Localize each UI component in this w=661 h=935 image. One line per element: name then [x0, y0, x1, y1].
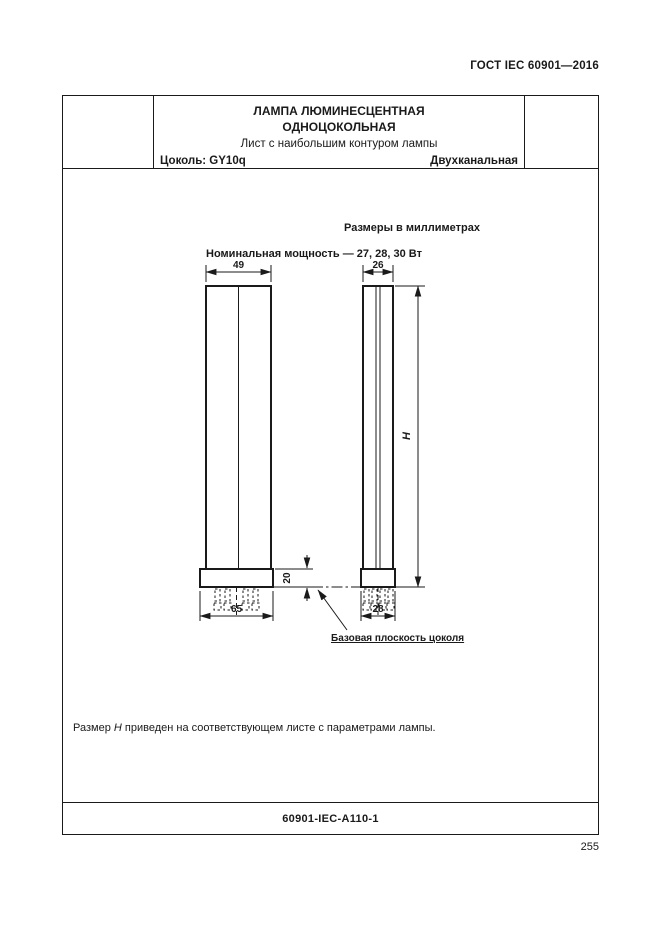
lamp-title-line1: ЛАМПА ЛЮМИНЕСЦЕНТНАЯ [154, 103, 524, 119]
sheet-reference: 60901-IEC-A110-1 [282, 813, 379, 825]
dim-front-base-width: 65 [231, 604, 243, 615]
note-symbol-h: H [114, 722, 122, 734]
pin-tip-hidden-outline [224, 603, 231, 610]
title-block: ЛАМПА ЛЮМИНЕСЦЕНТНАЯ ОДНОЦОКОЛЬНАЯ Лист … [63, 96, 598, 169]
dim-front-tube-width: 49 [233, 260, 245, 271]
units-note: Размеры в миллиметрах [344, 222, 481, 234]
base-plane-label: Базовая плоскость цоколя [331, 633, 464, 644]
lamp-title-line2: ОДНОЦОКОЛЬНАЯ [154, 119, 524, 135]
front-view-cap-outline [200, 569, 273, 587]
pin-hidden-outline [372, 589, 377, 601]
side-view-tube-outline [363, 286, 393, 569]
standard-designation: ГОСТ IEC 60901—2016 [0, 60, 599, 72]
title-block-center-cell: ЛАМПА ЛЮМИНЕСЦЕНТНАЯ ОДНОЦОКОЛЬНАЯ Лист … [154, 96, 524, 168]
sheet-frame: ЛАМПА ЛЮМИНЕСЦЕНТНАЯ ОДНОЦОКОЛЬНАЯ Лист … [62, 95, 599, 835]
cap-and-channel-row: Цоколь: GY10q Двухканальная [154, 153, 524, 167]
dimension-h-note: Размер H приведен на соответствующем лис… [73, 722, 436, 734]
note-text: приведен на соответствующем листе с пара… [125, 722, 436, 734]
document-page: ГОСТ IEC 60901—2016 ЛАМПА ЛЮМИНЕСЦЕНТНАЯ… [0, 0, 661, 935]
pin-hidden-outline [253, 589, 258, 601]
pin-hidden-outline [364, 589, 369, 601]
dim-cap-height: 20 [282, 572, 293, 584]
pin-hidden-outline [243, 589, 248, 601]
dim-side-tube-width: 26 [372, 260, 384, 271]
pin-hidden-outline [380, 589, 385, 601]
side-view-cap-outline [361, 569, 395, 587]
dim-overall-height: H [401, 431, 413, 440]
pin-tip-hidden-outline [387, 603, 394, 610]
sheet-reference-band: 60901-IEC-A110-1 [63, 802, 598, 834]
sheet-subtitle: Лист с наибольшим контуром лампы [154, 136, 524, 153]
pin-tip-hidden-outline [363, 603, 370, 610]
rated-power-note: Номинальная мощность — 27, 28, 30 Вт [206, 248, 423, 260]
pin-hidden-outline [225, 589, 230, 601]
page-number: 255 [0, 841, 599, 853]
technical-drawing: Размеры в миллиметрах Номинальная мощнос… [63, 169, 596, 801]
dim-side-base-width: 28 [372, 604, 384, 615]
note-prefix: Размер [73, 722, 111, 734]
channel-type-label: Двухканальная [430, 155, 518, 167]
pin-hidden-outline [215, 589, 220, 601]
base-plane-leader [318, 590, 347, 630]
pin-tip-hidden-outline [242, 603, 249, 610]
cap-type-label: Цоколь: GY10q [160, 155, 246, 167]
pin-tip-hidden-outline [252, 603, 259, 610]
title-block-divider-right [524, 96, 525, 168]
pin-tip-hidden-outline [214, 603, 221, 610]
pin-hidden-outline [388, 589, 393, 601]
